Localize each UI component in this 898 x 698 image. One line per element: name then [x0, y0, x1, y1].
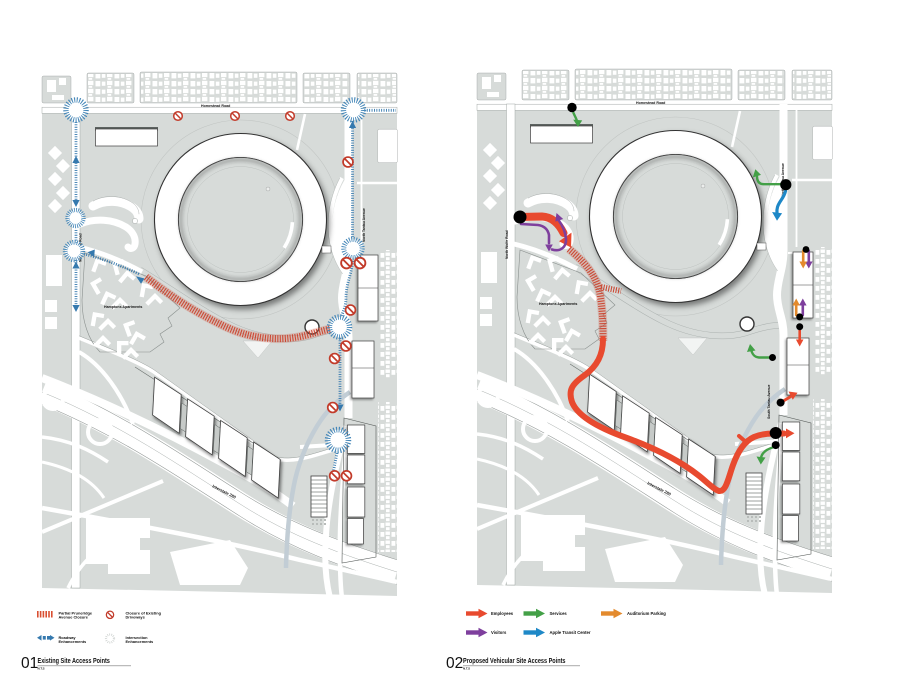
svg-text:Services: Services: [550, 611, 568, 616]
svg-text:Hamptons Apartments: Hamptons Apartments: [104, 305, 142, 309]
svg-text:02: 02: [446, 655, 463, 672]
svg-text:N.T.S: N.T.S: [463, 666, 470, 670]
svg-text:Visitors: Visitors: [491, 630, 507, 635]
svg-text:Auditorium Parking: Auditorium Parking: [627, 611, 666, 616]
svg-text:01: 01: [21, 655, 38, 672]
svg-text:Enhancements: Enhancements: [126, 639, 154, 644]
svg-text:Enhancements: Enhancements: [59, 639, 87, 644]
svg-text:Employees: Employees: [491, 611, 514, 616]
svg-text:South Tantau Avenue: South Tantau Avenue: [767, 385, 771, 419]
svg-text:North Wolfe Road: North Wolfe Road: [505, 230, 509, 259]
svg-text:Existing Site Access Points: Existing Site Access Points: [38, 657, 111, 665]
svg-text:Proposed Vehicular Site Access: Proposed Vehicular Site Access Points: [463, 657, 566, 665]
svg-text:Driveways: Driveways: [126, 615, 145, 620]
svg-text:N.T.S: N.T.S: [38, 666, 45, 670]
svg-text:Homestead Road: Homestead Road: [201, 104, 230, 108]
svg-text:North Tantau Avenue: North Tantau Avenue: [362, 208, 366, 242]
svg-text:Apple Transit Center: Apple Transit Center: [550, 630, 591, 635]
svg-text:Avenue Closure: Avenue Closure: [59, 615, 89, 620]
